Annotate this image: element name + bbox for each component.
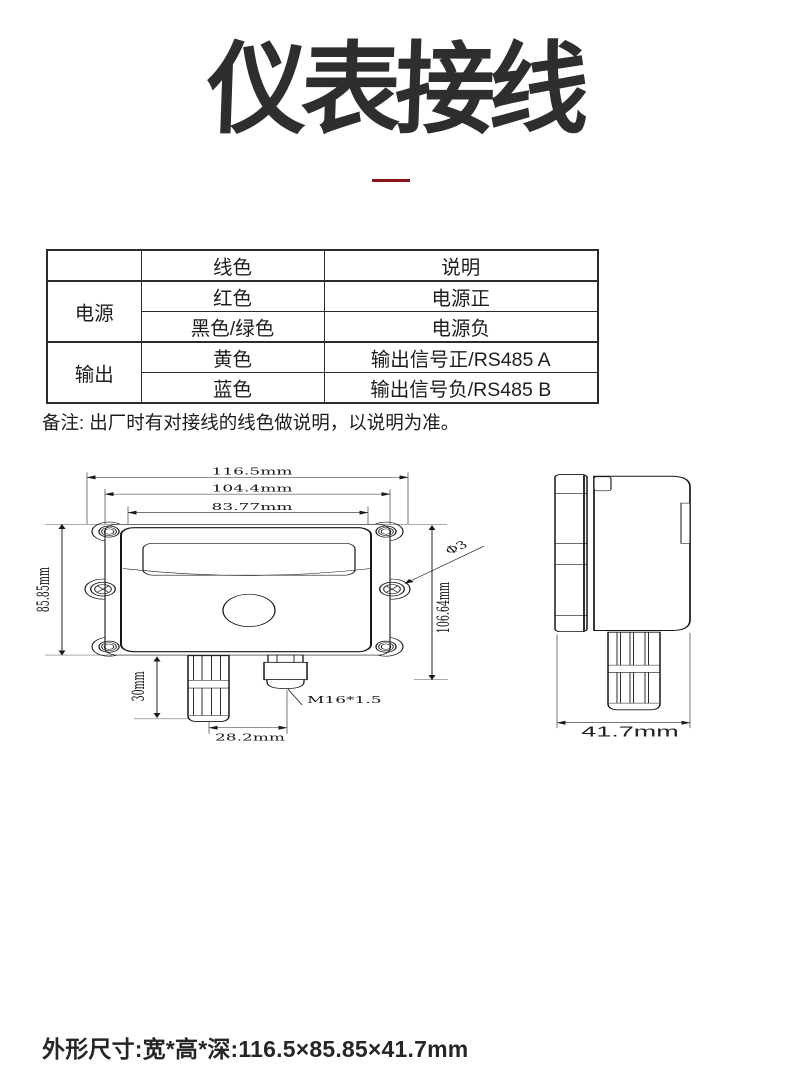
group-power-label: 电源: [47, 281, 141, 342]
wire-desc-cell: 电源负: [324, 312, 598, 343]
cable-gland: [264, 655, 307, 689]
wire-desc-cell: 输出信号正/RS485 A: [324, 342, 598, 373]
wire-color-cell: 蓝色: [141, 373, 324, 404]
header-description: 说明: [324, 250, 598, 281]
side-top-tab: [594, 477, 611, 491]
header-group: [47, 250, 141, 281]
table-row: 输出 黄色 输出信号正/RS485 A: [47, 342, 598, 373]
page-title: 仪表接线: [0, 34, 790, 146]
dim-window-width: 83.77mm: [212, 502, 293, 513]
table-header-row: 线色 说明: [47, 250, 598, 281]
side-body: [594, 476, 690, 630]
dim-probe-spacing: 28.2mm: [215, 732, 285, 743]
dim-body-width: 104.4mm: [212, 483, 293, 494]
side-view: 41.7mm: [555, 475, 690, 741]
label-gland-thread: M16*1.5: [307, 695, 382, 706]
dim-overall-height: 106.64mm: [434, 582, 454, 633]
product-wiring-page: 仪表接线 线色 说明 电源 红色 电源正 黑色/绿色 电源负 输出 黄色 输出信…: [0, 0, 790, 1092]
side-groove: [681, 503, 690, 543]
wire-color-cell: 黑色/绿色: [141, 312, 324, 343]
header-wire-color: 线色: [141, 250, 324, 281]
side-probe: [608, 632, 660, 710]
wire-desc-cell: 输出信号负/RS485 B: [324, 373, 598, 404]
wire-color-cell: 红色: [141, 281, 324, 312]
title-accent-dash: [372, 179, 410, 182]
group-output-label: 输出: [47, 342, 141, 403]
dim-body-height: 85.85mm: [34, 567, 54, 612]
side-flange: [555, 475, 587, 632]
dim-overall-width: 116.5mm: [212, 466, 293, 477]
wire-color-cell: 黄色: [141, 342, 324, 373]
overall-dimensions-text: 外形尺寸:宽*高*深:116.5×85.85×41.7mm: [42, 1030, 468, 1064]
technical-drawing: 116.5mm 104.4mm 83.77mm 85.85mm 106.64mm…: [0, 450, 790, 1020]
remark-note: 备注: 出厂时有对接线的线色做说明，以说明为准。: [42, 409, 459, 435]
dim-probe-length: 30mm: [129, 671, 149, 701]
front-view: 116.5mm 104.4mm 83.77mm 85.85mm 106.64mm…: [34, 466, 484, 743]
wiring-table: 线色 说明 电源 红色 电源正 黑色/绿色 电源负 输出 黄色 输出信号正/RS…: [46, 249, 599, 404]
table-row: 电源 红色 电源正: [47, 281, 598, 312]
dim-depth: 41.7mm: [581, 723, 678, 740]
sensor-probe: [188, 656, 229, 722]
wire-desc-cell: 电源正: [324, 281, 598, 312]
